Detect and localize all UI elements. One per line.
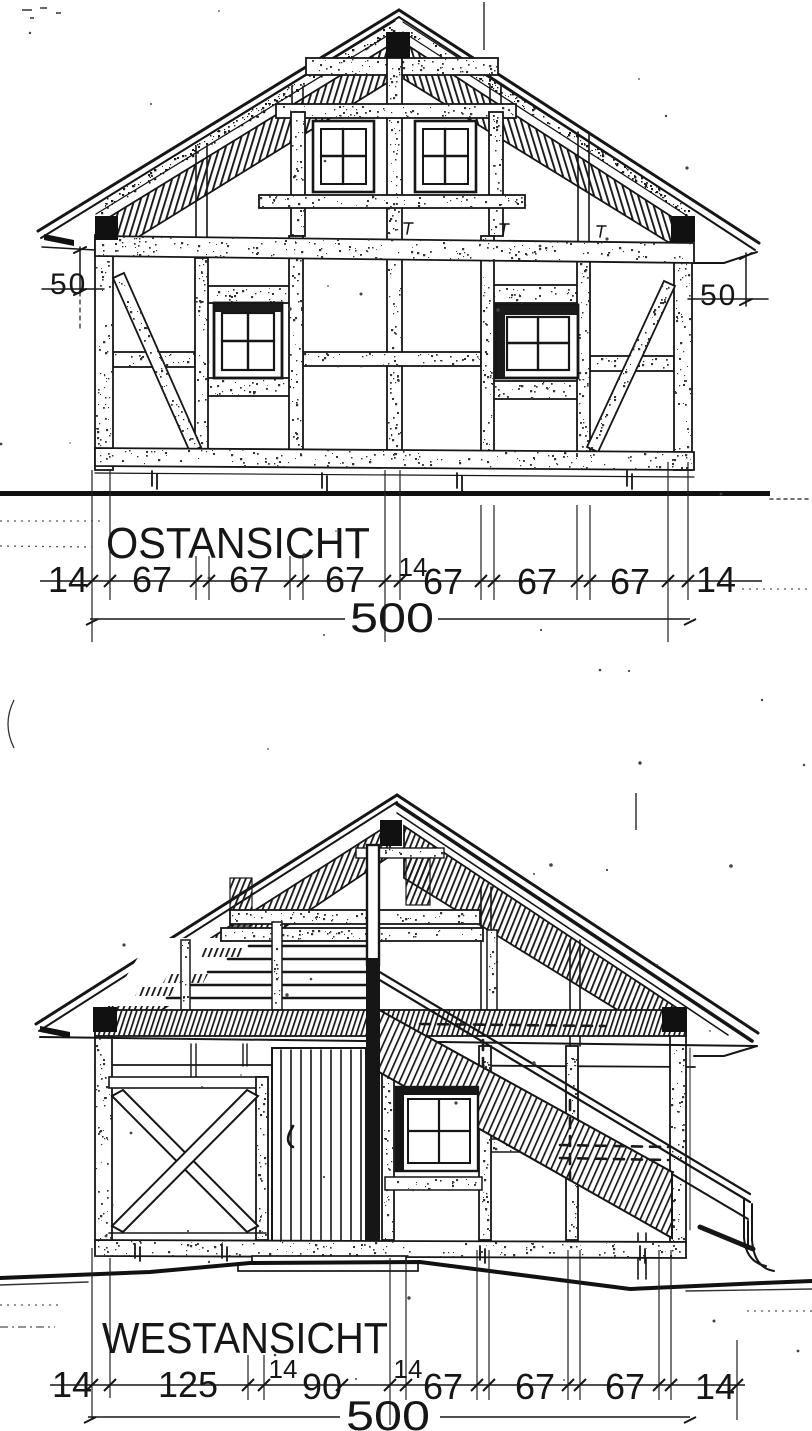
- svg-text:67: 67: [132, 559, 172, 600]
- svg-text:14: 14: [695, 1366, 735, 1407]
- svg-text:50: 50: [700, 279, 737, 312]
- svg-text:14: 14: [52, 1364, 92, 1405]
- svg-text:67: 67: [515, 1366, 555, 1407]
- svg-text:67: 67: [605, 1366, 645, 1407]
- svg-text:125: 125: [158, 1364, 218, 1405]
- svg-text:67: 67: [229, 559, 269, 600]
- svg-text:14: 14: [394, 1354, 423, 1384]
- svg-text:90: 90: [302, 1366, 342, 1407]
- svg-text:67: 67: [610, 561, 650, 602]
- svg-text:14: 14: [696, 559, 736, 600]
- svg-text:WESTANSICHT: WESTANSICHT: [102, 1314, 388, 1363]
- svg-text:50: 50: [50, 268, 87, 301]
- svg-text:500: 500: [346, 1392, 430, 1431]
- svg-text:14: 14: [48, 559, 88, 600]
- svg-text:67: 67: [517, 561, 557, 602]
- svg-text:500: 500: [350, 594, 434, 641]
- svg-text:14: 14: [269, 1354, 298, 1384]
